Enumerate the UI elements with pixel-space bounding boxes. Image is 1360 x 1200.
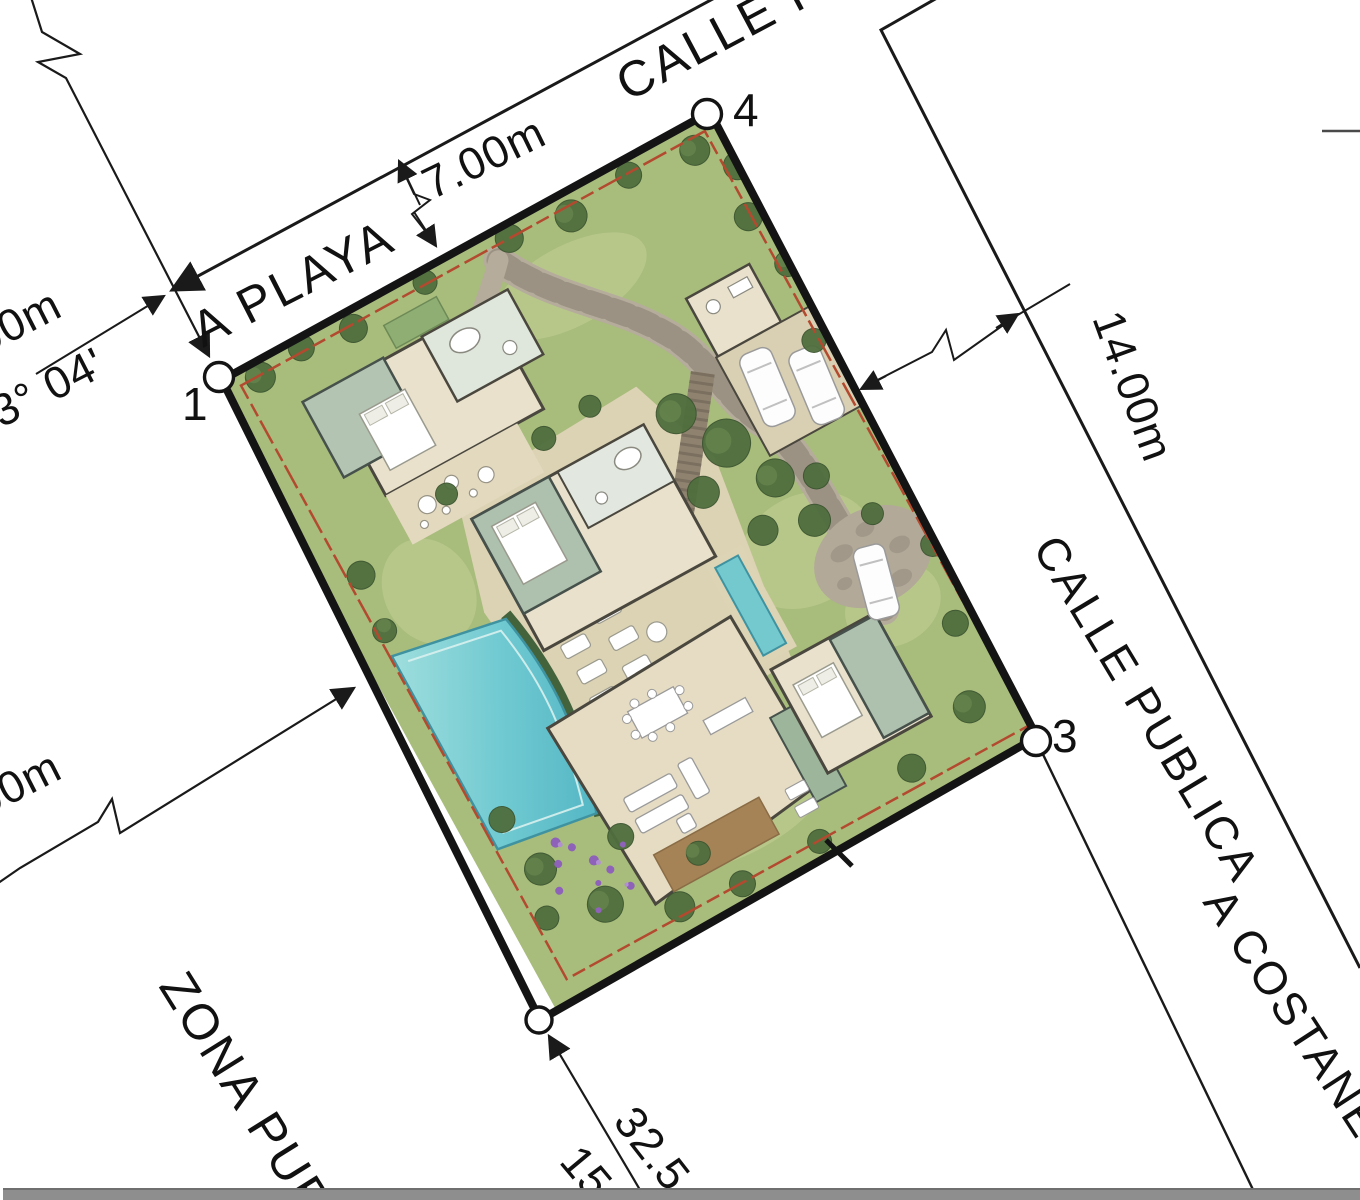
point-label-1: 1 (182, 378, 208, 430)
site-plan-canvas: CALLE PU CALLE PUBLICA A PLAYA A COSTANE… (0, 0, 1360, 1200)
zone-label-public: ZONA PUB (149, 962, 343, 1200)
survey-point-marker-south (526, 1007, 552, 1033)
street-label-right: CALLE PUBLICA (1023, 526, 1271, 891)
right-road-outer-edge-line (881, 0, 1360, 968)
dimension-label-bottom: 32.5 (604, 1097, 701, 1200)
bearing-label-left: 33° 04' (0, 337, 113, 449)
survey-point-marker-4 (693, 100, 722, 129)
point-label-3: 3 (1052, 710, 1078, 762)
point-label-4: 4 (733, 84, 759, 136)
direction-label-coastal: A COSTANERA (1194, 879, 1360, 1200)
survey-point-marker-3 (1022, 727, 1051, 756)
dimension-label-14m: 14.00m (1083, 304, 1184, 468)
dimension-label-lower-left: 00m (0, 740, 69, 827)
survey-point-marker-1 (205, 363, 234, 392)
horizontal-scrollbar[interactable] (3, 1188, 1360, 1200)
